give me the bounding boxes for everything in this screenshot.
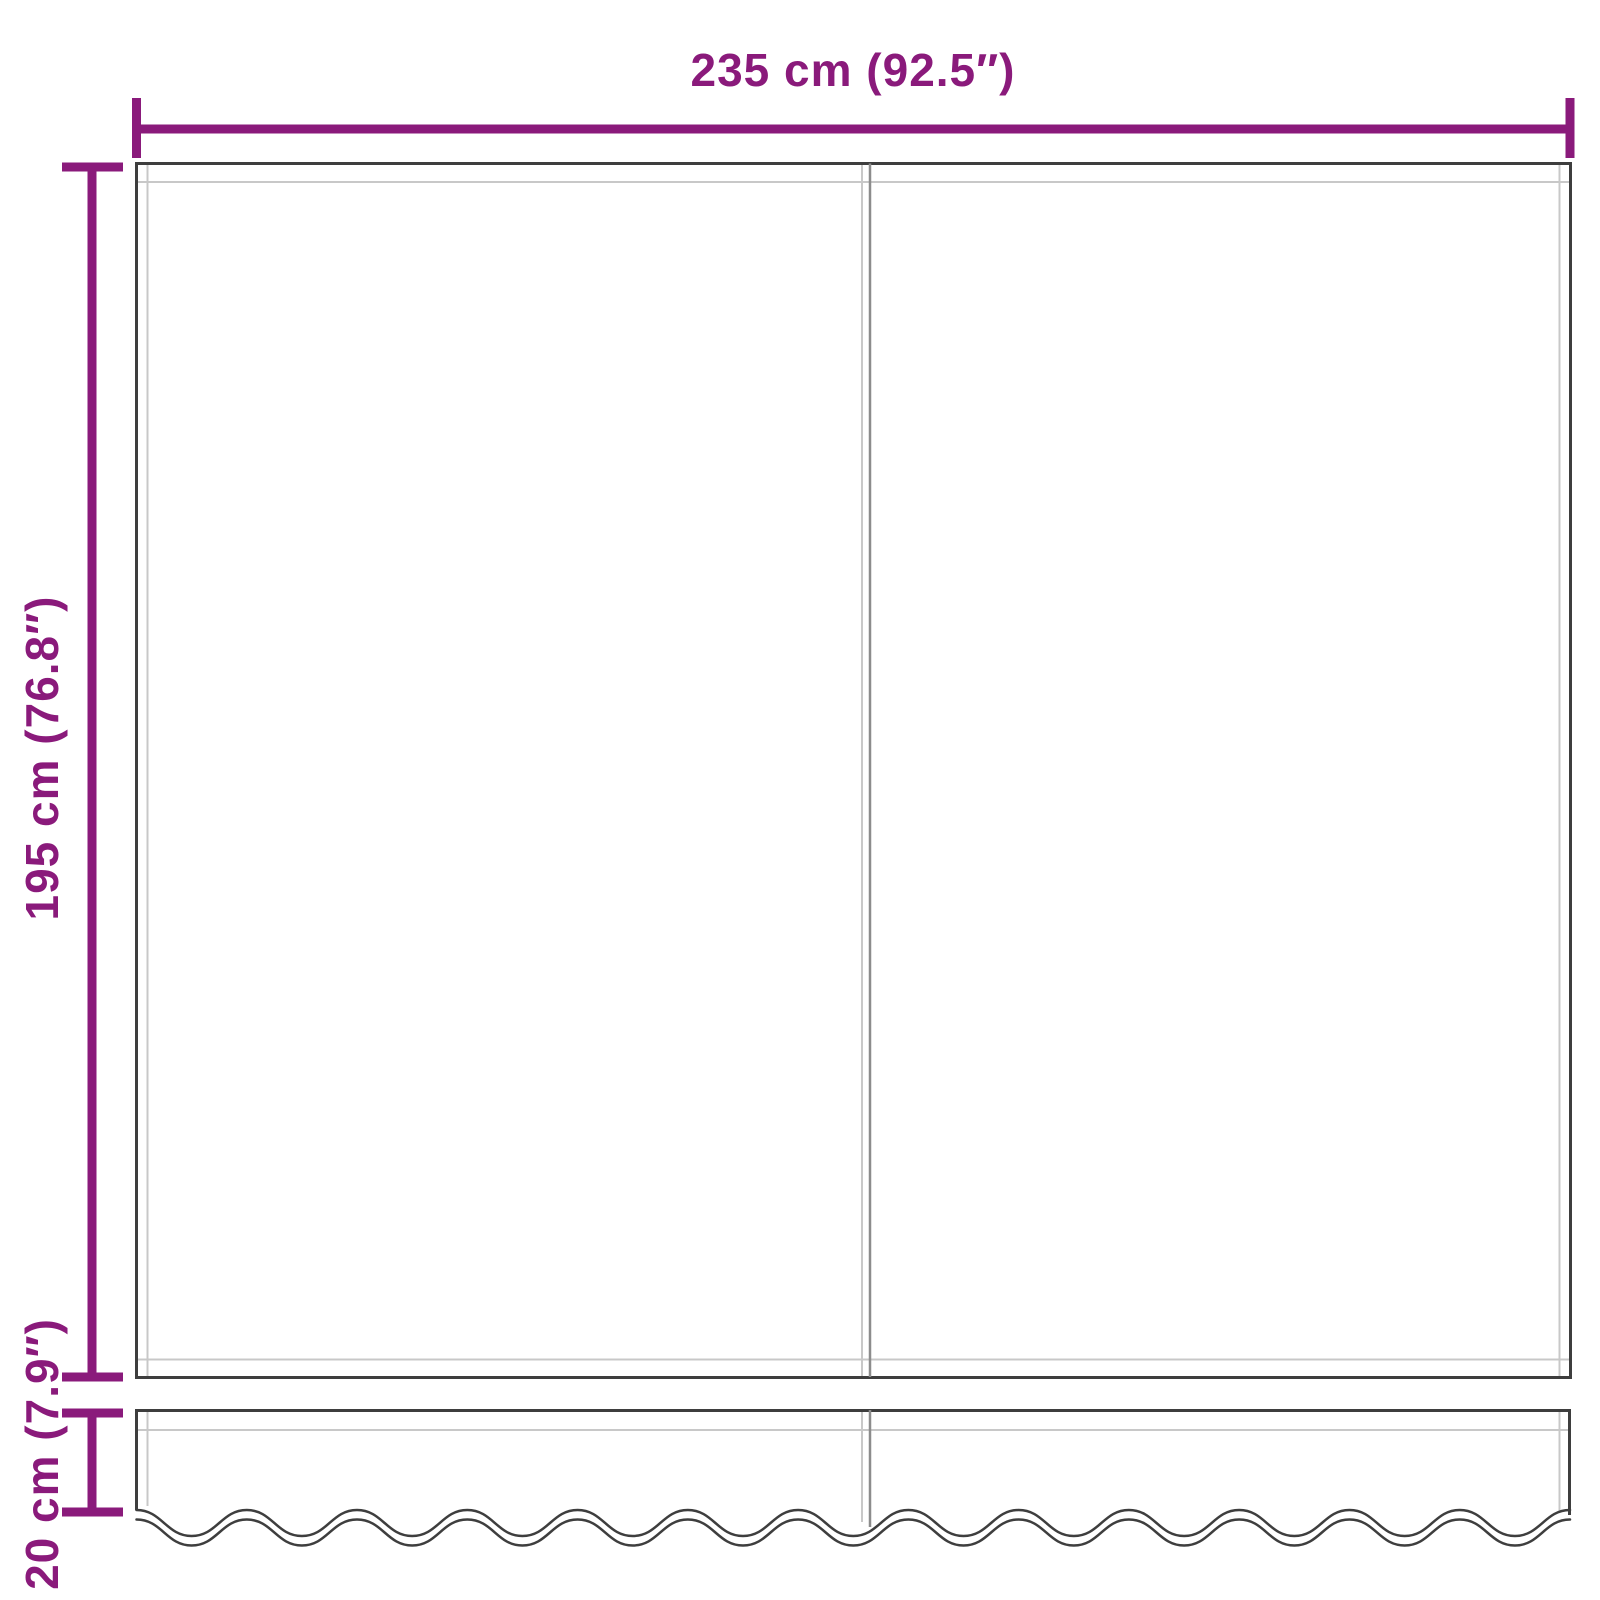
awning-fabric-drawing: [0, 0, 1600, 1600]
valance-wave-top: [137, 1510, 1571, 1536]
valance-dimension-label: 20 cm (7.9″): [19, 1318, 65, 1590]
height-dimension-label: 195 cm (76.8″): [19, 596, 65, 921]
width-dimension: [137, 98, 1571, 158]
valance-height-dimension: [62, 1413, 123, 1512]
width-dimension-label: 235 cm (92.5″): [691, 47, 1016, 93]
fabric-outer-border: [137, 164, 1571, 1378]
fabric-panel: [137, 164, 1571, 1378]
height-dimension: [62, 167, 123, 1377]
valance-wave-bottom: [137, 1520, 1571, 1546]
dimension-diagram: 235 cm (92.5″) 195 cm (76.8″) 20 cm (7.9…: [0, 0, 1600, 1600]
valance: [135, 1409, 1571, 1546]
